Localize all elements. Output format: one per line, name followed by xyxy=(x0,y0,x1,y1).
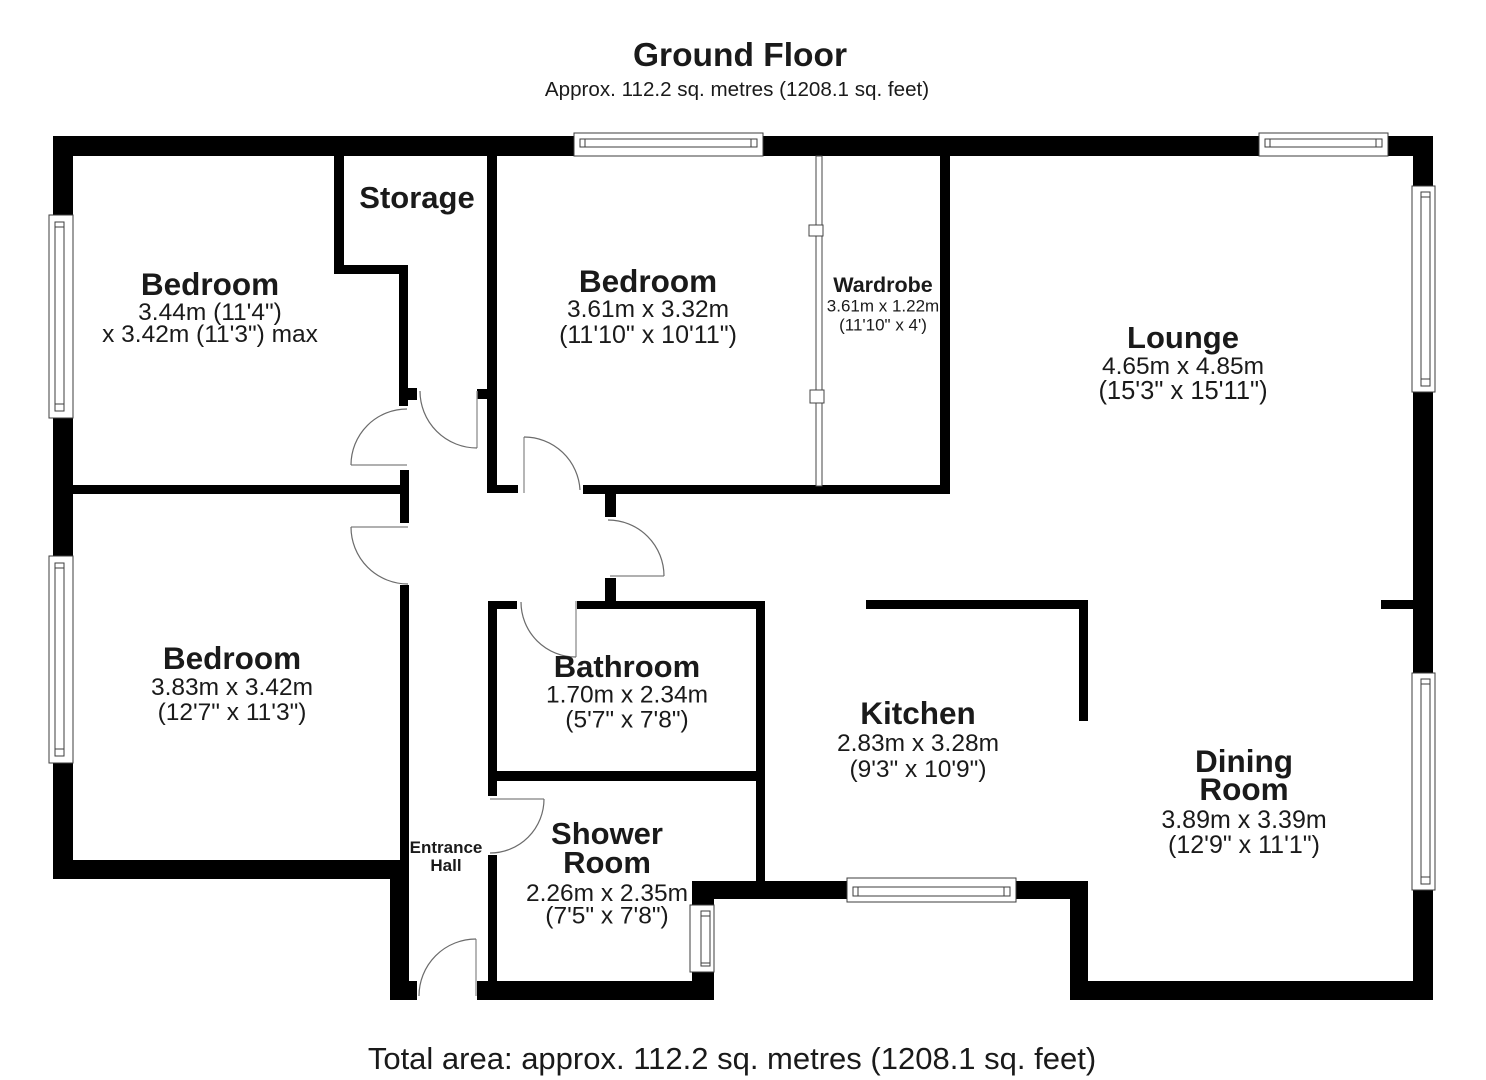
svg-text:(11'10" x 10'11"): (11'10" x 10'11") xyxy=(559,321,737,349)
svg-text:Room: Room xyxy=(1199,771,1288,807)
svg-text:Entrance: Entrance xyxy=(410,838,483,857)
svg-text:(5'7" x 7'8"): (5'7" x 7'8") xyxy=(565,707,688,734)
svg-text:(15'3" x 15'11"): (15'3" x 15'11") xyxy=(1098,377,1267,405)
svg-text:(11'10" x 4'): (11'10" x 4') xyxy=(839,316,927,335)
svg-text:Hall: Hall xyxy=(430,856,461,875)
svg-text:Wardrobe: Wardrobe xyxy=(833,273,933,297)
svg-text:1.70m x 2.34m: 1.70m x 2.34m xyxy=(546,682,708,709)
svg-text:Bathroom: Bathroom xyxy=(554,649,700,684)
svg-text:3.89m x 3.39m: 3.89m x 3.39m xyxy=(1161,806,1326,834)
svg-text:Ground Floor: Ground Floor xyxy=(633,37,847,74)
svg-text:Approx. 112.2 sq. metres (1208: Approx. 112.2 sq. metres (1208.1 sq. fee… xyxy=(545,78,929,101)
svg-text:Bedroom: Bedroom xyxy=(163,640,301,676)
svg-text:Total area: approx. 112.2 sq.: Total area: approx. 112.2 sq. metres (12… xyxy=(368,1041,1096,1076)
svg-text:4.65m x 4.85m: 4.65m x 4.85m xyxy=(1102,353,1264,380)
svg-text:Kitchen: Kitchen xyxy=(860,695,976,731)
svg-text:(9'3" x 10'9"): (9'3" x 10'9") xyxy=(849,756,986,783)
svg-text:3.83m x 3.42m: 3.83m x 3.42m xyxy=(151,674,313,701)
svg-text:Room: Room xyxy=(563,845,651,880)
svg-text:Bedroom: Bedroom xyxy=(579,263,717,299)
svg-text:(12'7" x 11'3"): (12'7" x 11'3") xyxy=(158,699,307,726)
svg-text:Lounge: Lounge xyxy=(1127,320,1239,355)
svg-text:3.61m x 3.32m: 3.61m x 3.32m xyxy=(567,296,729,323)
svg-text:3.61m x 1.22m: 3.61m x 1.22m xyxy=(827,297,939,316)
svg-text:2.83m x 3.28m: 2.83m x 3.28m xyxy=(837,730,999,757)
svg-text:(12'9" x 11'1"): (12'9" x 11'1") xyxy=(1168,831,1320,859)
svg-text:Bedroom: Bedroom xyxy=(141,266,279,302)
svg-text:Storage: Storage xyxy=(359,180,474,215)
svg-text:(7'5" x 7'8"): (7'5" x 7'8") xyxy=(545,903,668,930)
svg-text:x 3.42m (11'3") max: x 3.42m (11'3") max xyxy=(102,321,318,348)
